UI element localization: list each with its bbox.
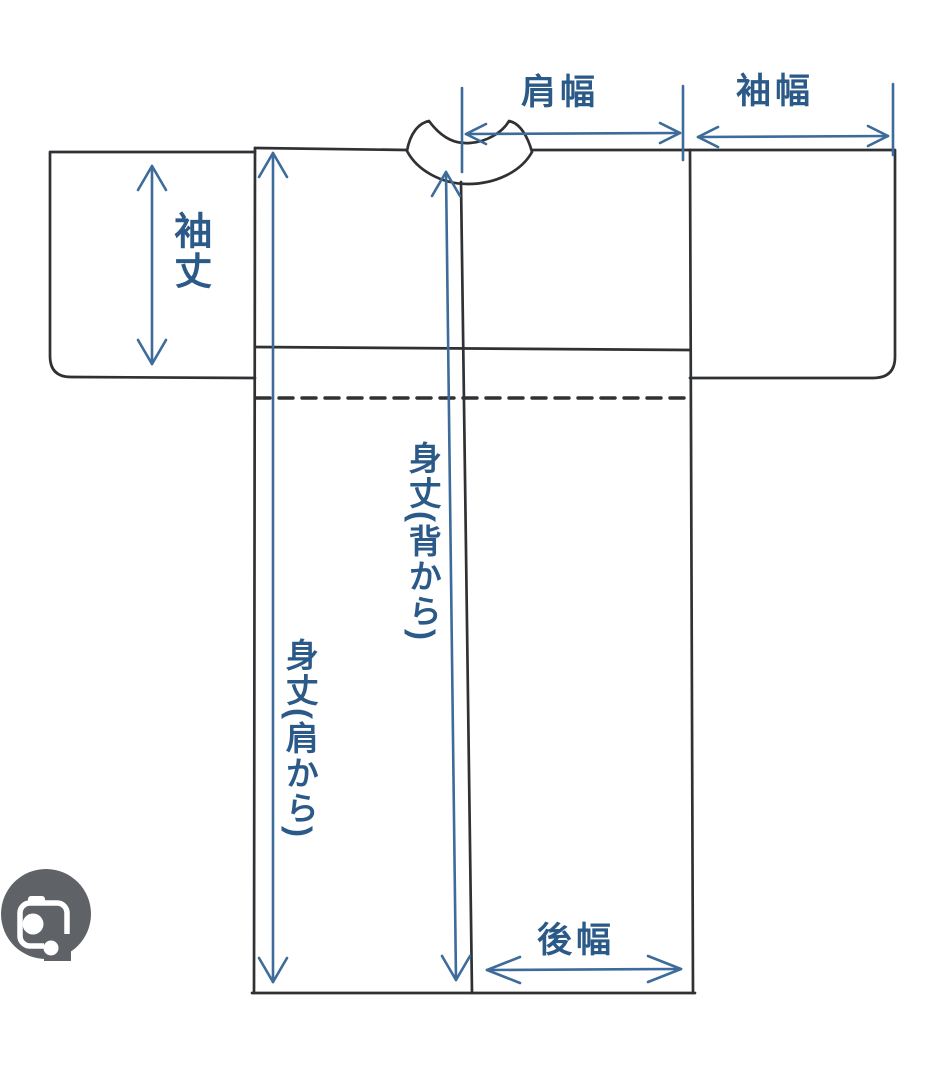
kimono-diagram <box>0 0 943 1080</box>
chest-seam-line <box>255 347 690 350</box>
shoulder-width-arrow <box>466 123 680 144</box>
collar-outline <box>407 121 532 184</box>
camera-lens-dot <box>23 914 44 935</box>
body-length-back-label: 身丈(背から) <box>404 441 440 642</box>
measurement-annotations <box>138 84 893 983</box>
camera-button[interactable] <box>1 869 91 961</box>
sleeve-length-label: 袖丈 <box>167 211 209 291</box>
body-length-shoulder-label: 身丈(肩から) <box>281 638 317 839</box>
camera-corner-dot <box>44 941 59 956</box>
right-sleeve-outline <box>690 150 895 378</box>
screenshot-root: 肩幅 袖幅 袖丈 身丈(背から) 身丈(肩から) 後幅 <box>0 0 943 1080</box>
shoulder-width-label: 肩幅 <box>521 64 599 115</box>
back-width-label: 後幅 <box>537 912 615 963</box>
sleeve-length-arrow <box>138 166 166 364</box>
body-left-edge <box>254 148 255 993</box>
sleeve-width-arrow <box>698 126 888 147</box>
body-right-edge <box>690 150 693 993</box>
center-back-seam <box>461 182 472 993</box>
body-length-shoulder-arrow <box>259 153 287 982</box>
body-top-left-edge <box>255 148 407 150</box>
sleeve-width-label: 袖幅 <box>736 63 814 114</box>
